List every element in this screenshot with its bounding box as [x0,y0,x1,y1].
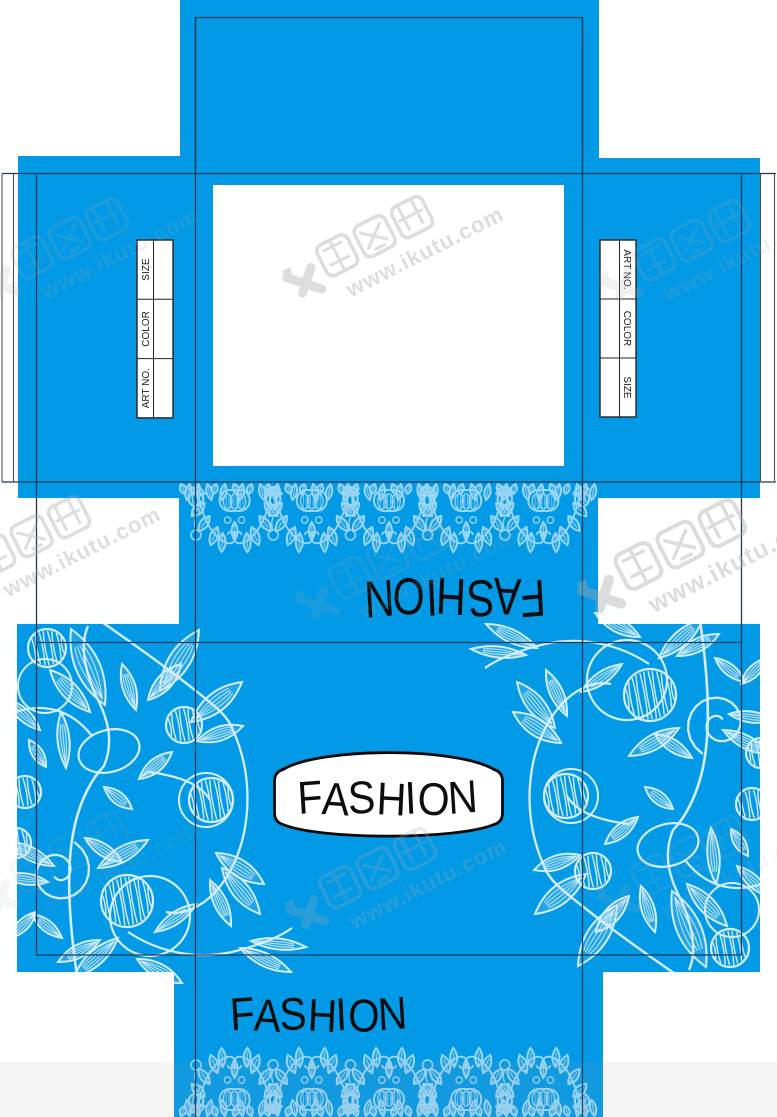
svg-text:COLOR: COLOR [621,311,632,347]
svg-text:SIZE: SIZE [621,376,632,399]
svg-text:SIZE: SIZE [141,258,152,281]
svg-text:ART NO.: ART NO. [141,368,152,408]
svg-text:COLOR: COLOR [141,311,152,347]
